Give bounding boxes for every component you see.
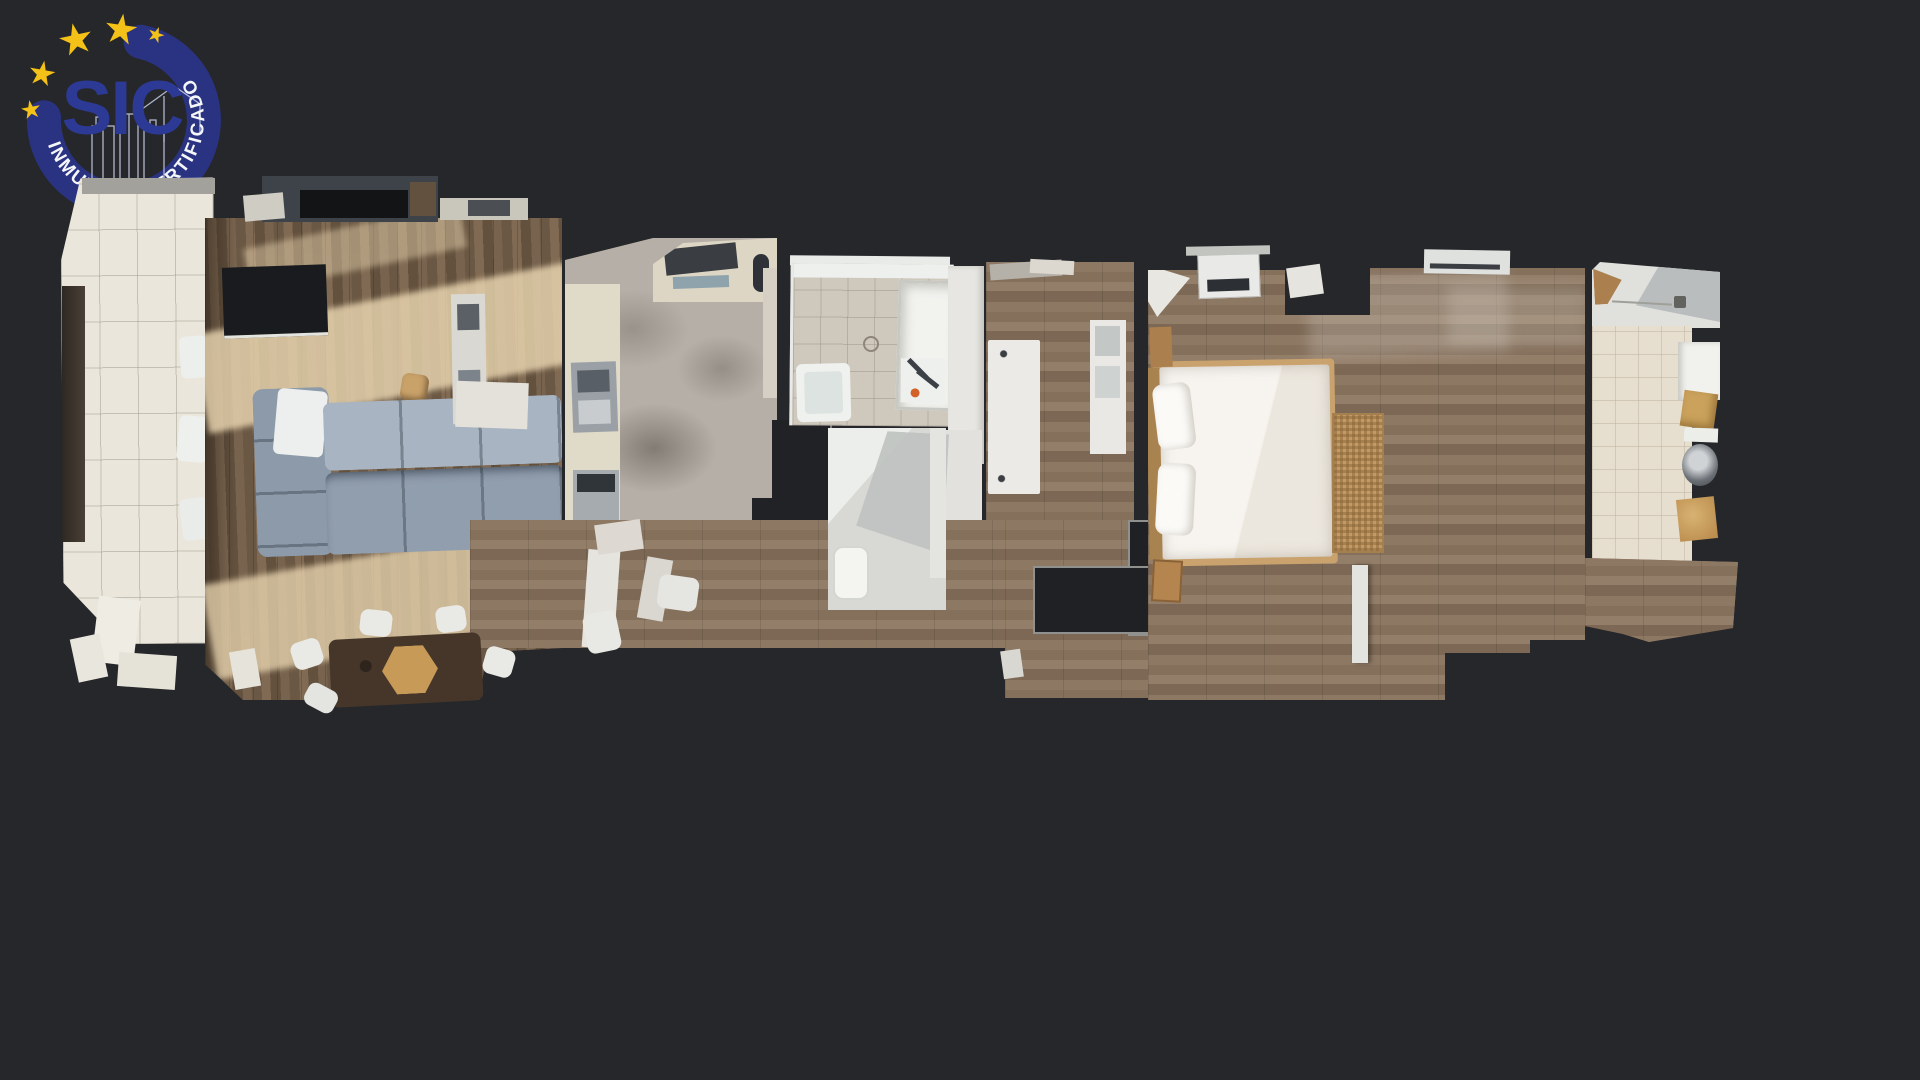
bathtub-basin [804,371,843,414]
sideboard-wood-top [410,182,436,216]
nightstand [1151,559,1183,603]
dresser [1149,327,1172,368]
dining-chair [434,604,467,634]
toiletry-item [911,388,920,397]
basket [1676,496,1718,542]
utility-bathroom [1592,262,1720,562]
bedroom-floor [1148,255,1585,700]
bedroom-floor-extension [1585,556,1738,642]
shelf-inset [1095,326,1120,356]
table-centerpiece [381,644,439,695]
ac-unit [1197,253,1260,299]
door-leaf-fragment [594,519,644,555]
corridor-floor [986,262,1134,524]
bathroom-tile-floor [1592,326,1692,562]
door-leaf-fragment [1286,264,1324,298]
wall-fragment [440,198,528,220]
light-haze [1448,285,1588,345]
floor-drain-icon [863,336,879,352]
shelf-inset [1095,366,1120,398]
bathroom-floor [789,263,953,426]
wall-fragment [243,192,285,221]
table-bowl [359,660,372,673]
sink-basin [577,369,610,392]
throw-blanket [273,388,329,458]
sink-drainer [578,399,611,424]
kitchen-stove-unit [573,470,619,520]
woven-rug [1332,413,1384,553]
ac-vent [1207,278,1249,291]
scan-void [222,264,328,339]
washbasin-cluster [901,358,945,402]
terrace-chair [176,415,210,463]
wall-void [1033,566,1154,634]
door-leaf-fragment [1148,265,1190,317]
scan-fragment [455,381,529,429]
guest-bathroom-floor [828,428,946,610]
metal-bowl [1682,444,1718,486]
stove-top [577,474,615,492]
terrace-planter [62,286,85,542]
kitchen-sink-unit [571,361,618,433]
ac-unit [1424,249,1510,274]
scan-fragment [1000,649,1024,680]
pillow [1155,462,1197,536]
cooktop [664,242,738,275]
wardrobe-door [988,340,1040,494]
dining-table [328,632,483,708]
white-chair [656,573,700,612]
tv-screen [300,190,408,218]
picture-frame [457,304,479,330]
kitchen-floor [565,238,777,522]
basket [1680,390,1719,430]
double-bed [1146,358,1340,566]
wall-fragment [763,268,777,398]
floorplan-screenshot-page: { "page": { "background_color": "#26272b… [0,0,1920,1080]
washbasin [833,546,869,600]
scan-fragment [117,652,177,690]
tv-sideboard [262,176,438,222]
floorplan-image [0,0,1920,1080]
bathtub-edge [794,263,954,278]
faucet [916,369,939,389]
scan-fragment [1684,427,1718,442]
terrace-top-ledge [82,178,215,194]
bathtub [796,363,851,422]
wall-fragment [930,428,946,578]
ac-vent [1430,263,1500,269]
kitchen-top-counter [653,238,777,302]
terrace-chair [179,335,210,379]
floor-drain-icon [1674,296,1686,308]
partition-wall [1352,565,1368,663]
wall-cabinet [946,430,982,522]
window-sill [1186,245,1270,255]
dining-chair [359,608,394,637]
pillow [1151,381,1197,451]
wall-shelf [673,275,729,289]
wall-fragment-dark [468,200,510,216]
scan-fragment [1030,259,1075,275]
shelf-unit [1090,320,1126,454]
